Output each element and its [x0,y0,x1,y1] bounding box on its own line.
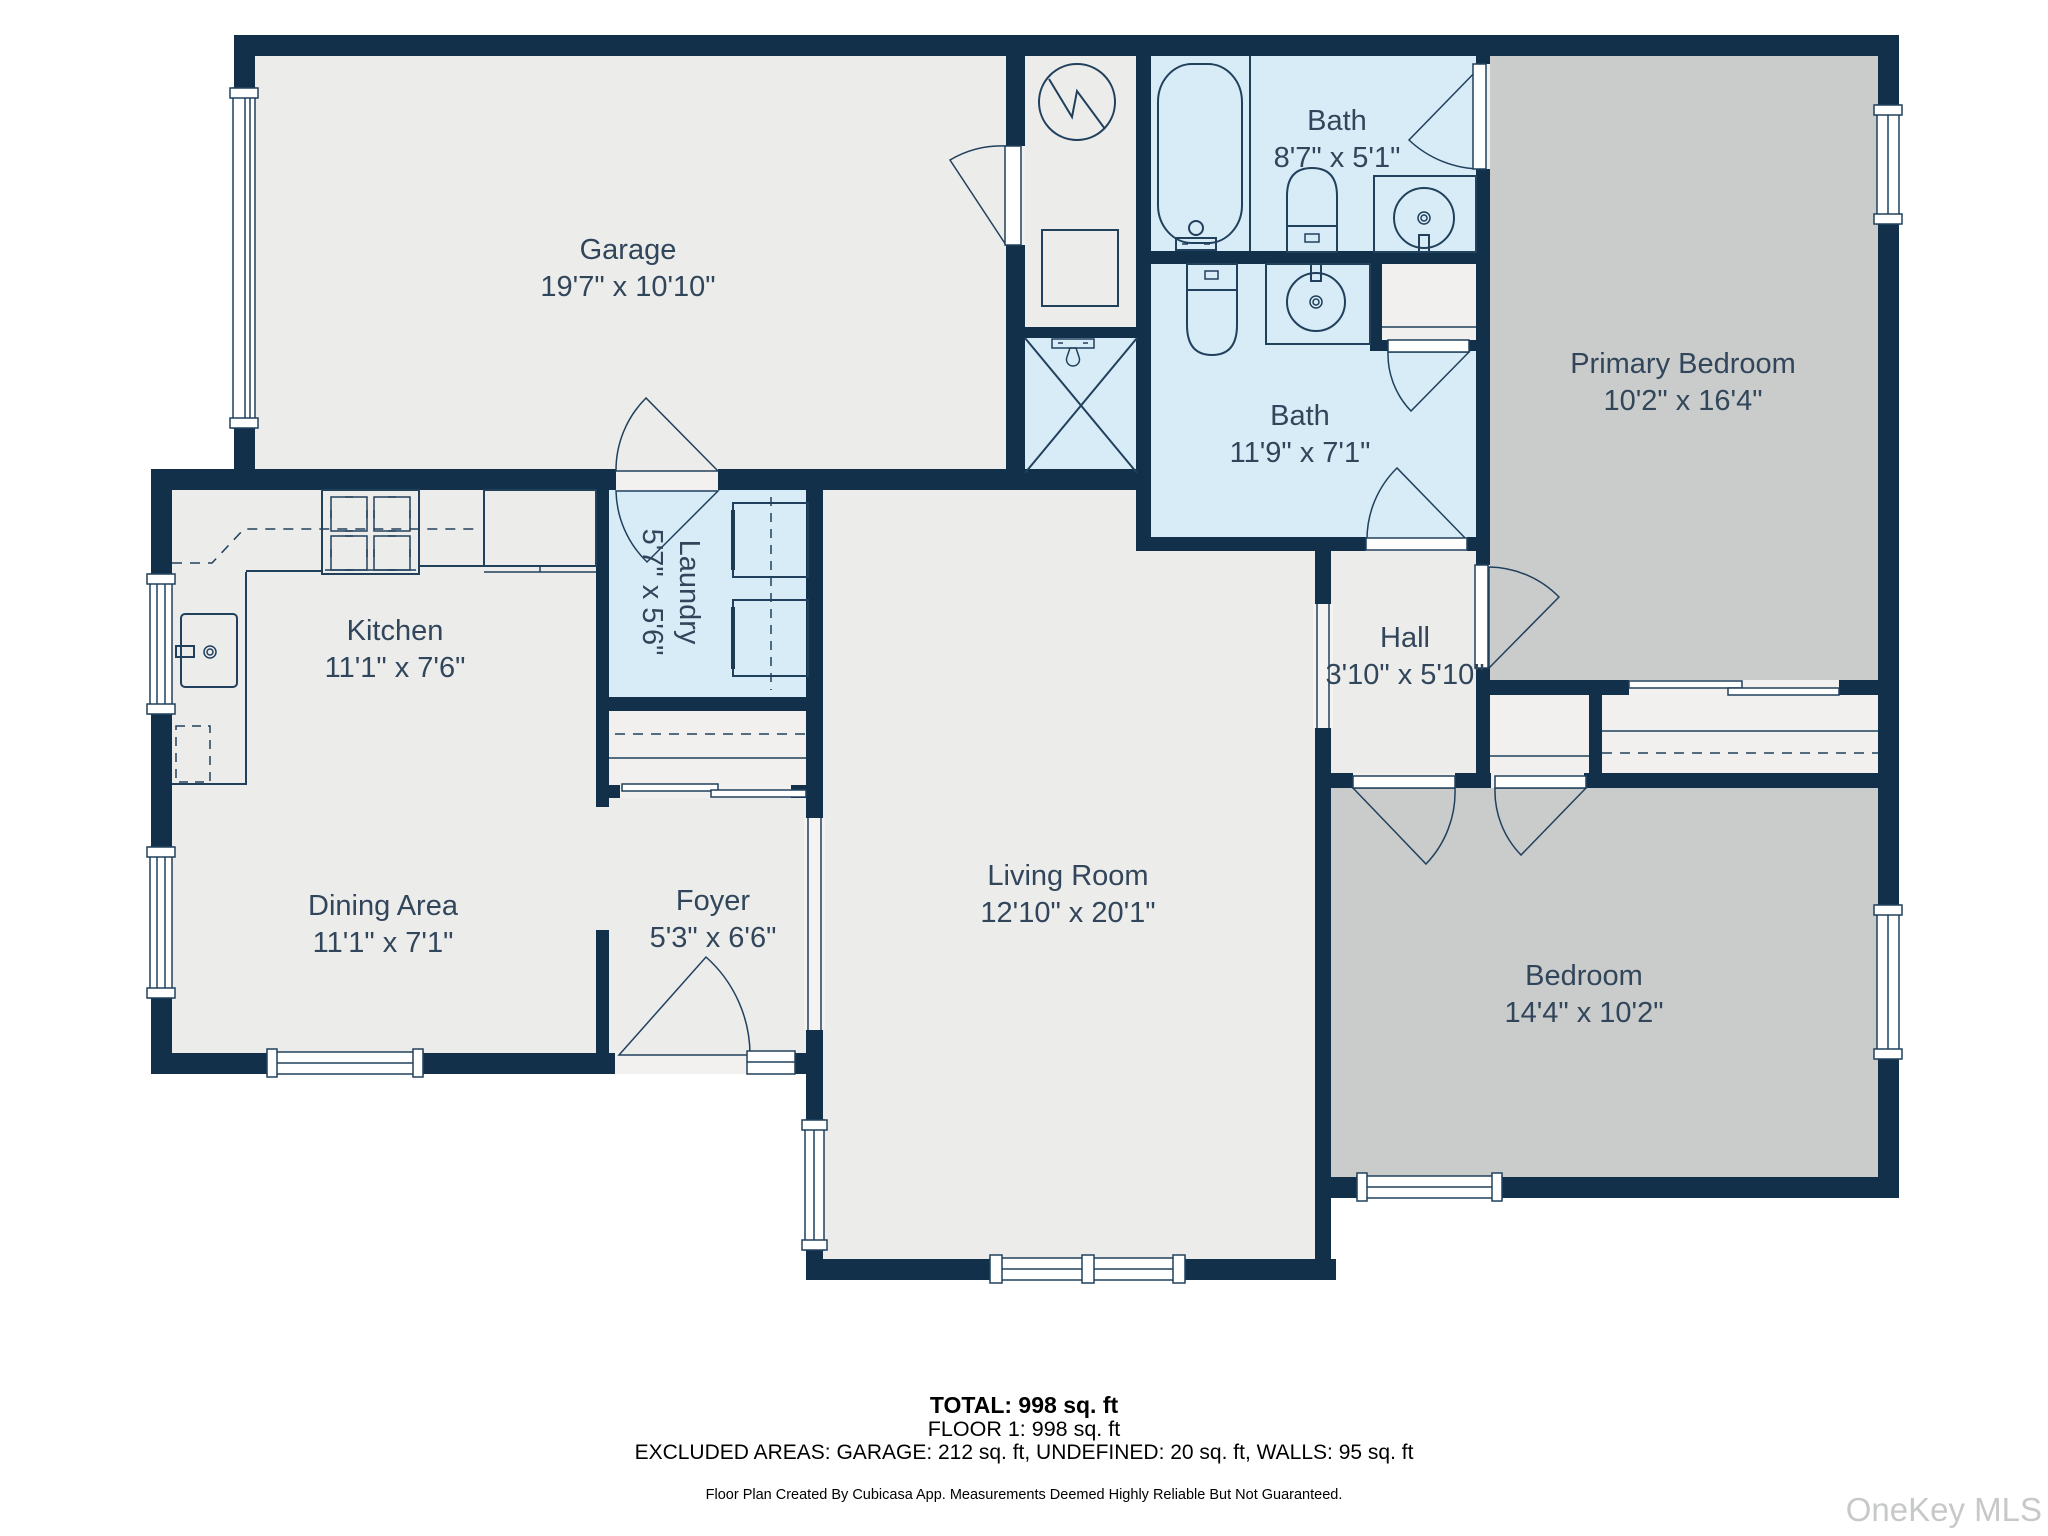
svg-text:11'9" x 7'1": 11'9" x 7'1" [1230,437,1371,469]
svg-text:Dining Area: Dining Area [308,890,459,922]
svg-text:14'4" x 10'2": 14'4" x 10'2" [1504,997,1663,1029]
svg-text:FLOOR 1: 998 sq. ft: FLOOR 1: 998 sq. ft [928,1417,1120,1441]
svg-text:19'7" x 10'10": 19'7" x 10'10" [540,271,715,303]
svg-text:Bath: Bath [1307,105,1367,137]
svg-text:Primary Bedroom: Primary Bedroom [1570,348,1796,380]
svg-text:8'7" x 5'1": 8'7" x 5'1" [1274,142,1401,174]
svg-text:11'1" x 7'1": 11'1" x 7'1" [313,927,454,959]
svg-text:Living Room: Living Room [987,860,1148,892]
svg-text:Kitchen: Kitchen [347,615,444,647]
svg-text:10'2" x 16'4": 10'2" x 16'4" [1603,385,1762,417]
svg-text:OneKey MLS: OneKey MLS [1846,1491,2042,1528]
svg-text:Floor Plan Created By Cubicasa: Floor Plan Created By Cubicasa App. Meas… [706,1487,1343,1503]
svg-text:3'10" x 5'10": 3'10" x 5'10" [1325,659,1484,691]
svg-text:Hall: Hall [1380,622,1430,654]
svg-text:5'3" x 6'6": 5'3" x 6'6" [650,922,777,954]
svg-text:Garage: Garage [580,234,677,266]
svg-text:11'1" x 7'6": 11'1" x 7'6" [325,652,466,684]
svg-text:TOTAL: 998 sq. ft: TOTAL: 998 sq. ft [930,1392,1119,1418]
svg-text:12'10" x 20'1": 12'10" x 20'1" [980,897,1155,929]
svg-text:5'7" x 5'6": 5'7" x 5'6" [636,529,668,656]
svg-text:EXCLUDED AREAS: GARAGE: 212 sq: EXCLUDED AREAS: GARAGE: 212 sq. ft, UNDE… [635,1441,1414,1464]
svg-text:Laundry: Laundry [673,540,705,645]
svg-text:Foyer: Foyer [676,885,750,917]
svg-text:Bedroom: Bedroom [1525,960,1643,992]
svg-text:Bath: Bath [1270,400,1330,432]
